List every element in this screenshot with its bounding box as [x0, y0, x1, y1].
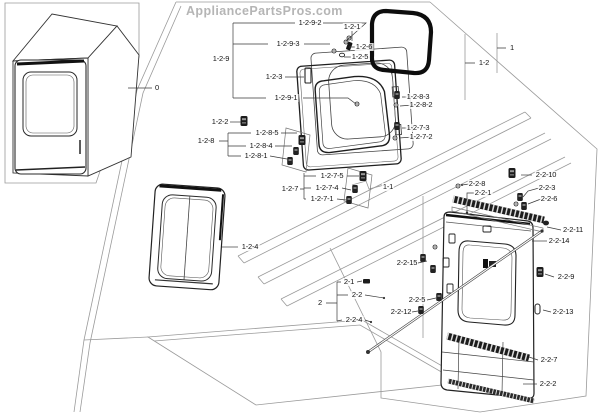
part-label-2-2-12: 2-2-12 — [390, 308, 412, 316]
part-label-2-2-13: 2-2-13 — [552, 308, 574, 316]
part-label-1-2-8-4: 1-2-8-4 — [249, 142, 274, 150]
part-label-1-2-7-1: 1-2-7-1 — [310, 195, 335, 203]
part-label-2-2-6: 2-2-6 — [540, 195, 559, 203]
part-label-1-2-8-5: 1-2-8-5 — [255, 129, 280, 137]
part-label-1-2-9-3: 1-2-9-3 — [276, 40, 301, 48]
rear-door-assembly — [363, 168, 549, 401]
part-label-1-2-5: 1-2-5 — [351, 53, 370, 61]
part-label-2-2-3: 2-2-3 — [538, 184, 557, 192]
door-panel-front — [149, 184, 226, 291]
part-label-1-2: 1-2 — [478, 59, 490, 67]
part-label-1-2-3: 1-2-3 — [265, 73, 284, 81]
part-label-2-2-14: 2-2-14 — [548, 237, 570, 245]
part-label-2: 2 — [317, 299, 323, 307]
part-label-1-1: 1-1 — [382, 183, 394, 191]
part-label-1: 1 — [509, 44, 515, 52]
part-label-1-2-8: 1-2-8 — [197, 137, 216, 145]
part-label-2-2-10: 2-2-10 — [535, 171, 557, 179]
part-label-2-2-1: 2-2-1 — [474, 189, 493, 197]
part-label-0: 0 — [154, 84, 160, 92]
part-label-2-2: 2-2 — [351, 291, 363, 299]
dryer-cabinet — [13, 14, 139, 176]
part-label-2-2-5: 2-2-5 — [408, 296, 427, 304]
part-label-2-2-2: 2-2-2 — [539, 380, 558, 388]
part-label-2-1: 2-1 — [343, 278, 355, 286]
diagram-canvas: AppliancePartsPros.com 01-2-9-21-2-11-2-… — [0, 0, 600, 413]
part-label-1-2-7-5: 1-2-7-5 — [320, 172, 345, 180]
part-label-2-2-8: 2-2-8 — [468, 180, 487, 188]
part-label-1-2-7: 1-2-7 — [281, 185, 300, 193]
part-label-1-2-2: 1-2-2 — [211, 118, 230, 126]
part-label-1-2-7-4: 1-2-7-4 — [315, 184, 340, 192]
part-label-1-2-8-2: 1-2-8-2 — [409, 101, 434, 109]
part-label-2-2-7: 2-2-7 — [540, 356, 559, 364]
part-label-1-2-6: 1-2-6 — [355, 43, 374, 51]
part-label-1-2-9-2: 1-2-9-2 — [298, 19, 323, 27]
watermark: AppliancePartsPros.com — [186, 4, 416, 18]
part-label-2-2-9: 2-2-9 — [557, 273, 576, 281]
part-label-1-2-8-1: 1-2-8-1 — [244, 152, 269, 160]
part-label-2-2-11: 2-2-11 — [562, 226, 584, 234]
diagram-line-art — [0, 0, 600, 413]
part-label-2-2-4: 2-2-4 — [345, 316, 364, 324]
part-label-1-2-4: 1-2-4 — [241, 243, 260, 251]
part-label-2-2-15: 2-2-15 — [396, 259, 418, 267]
part-label-1-2-7-2: 1-2-7-2 — [409, 133, 434, 141]
part-label-1-2-9: 1-2-9 — [212, 55, 231, 63]
part-label-1-2-1: 1-2-1 — [343, 23, 362, 31]
part-label-1-2-7-3: 1-2-7-3 — [406, 124, 431, 132]
part-label-1-2-9-1: 1-2-9-1 — [274, 94, 299, 102]
